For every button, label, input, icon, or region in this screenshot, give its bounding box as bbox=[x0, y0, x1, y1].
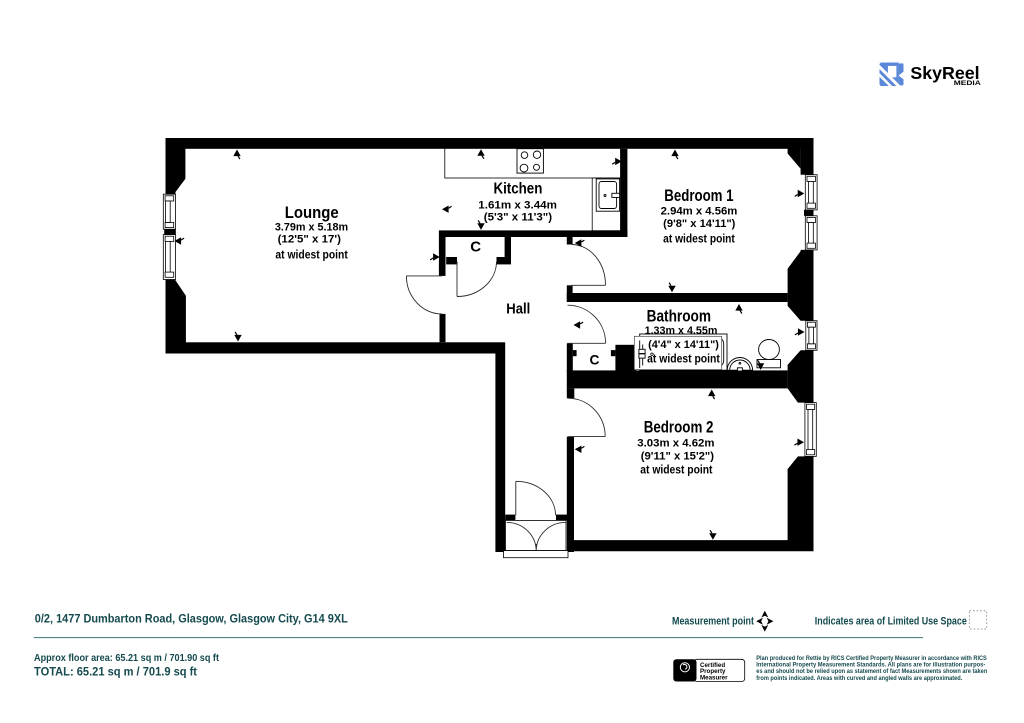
svg-text:0/2, 1477 Dumbarton Road, Glas: 0/2, 1477 Dumbarton Road, Glasgow, Glasg… bbox=[35, 612, 348, 626]
svg-text:Bedroom 1: Bedroom 1 bbox=[664, 186, 733, 205]
svg-text:Bedroom 2: Bedroom 2 bbox=[644, 418, 714, 437]
svg-text:Indicates area of Limited Use: Indicates area of Limited Use Space bbox=[815, 616, 967, 628]
svg-text:Bathroom: Bathroom bbox=[647, 307, 711, 326]
svg-text:Lounge: Lounge bbox=[285, 203, 339, 222]
svg-text:Approx floor area: 65.21 sq m: Approx floor area: 65.21 sq m / 701.90 s… bbox=[34, 653, 220, 664]
svg-text:RICS: RICS bbox=[678, 675, 691, 681]
svg-text:at widest point: at widest point bbox=[663, 233, 735, 246]
svg-text:(9'11" x 15'2"): (9'11" x 15'2") bbox=[641, 450, 714, 462]
svg-text:C: C bbox=[590, 353, 600, 368]
svg-text:(9'8" x 14'11"): (9'8" x 14'11") bbox=[663, 218, 735, 230]
svg-text:C: C bbox=[470, 239, 481, 256]
svg-text:Hall: Hall bbox=[506, 301, 530, 318]
svg-text:1.61m x 3.44m: 1.61m x 3.44m bbox=[478, 199, 557, 211]
svg-text:(5'3" x 11'3"): (5'3" x 11'3") bbox=[484, 212, 552, 224]
svg-text:at widest point: at widest point bbox=[275, 249, 348, 262]
svg-text:Kitchen: Kitchen bbox=[493, 181, 542, 198]
svg-text:3.03m x 4.62m: 3.03m x 4.62m bbox=[637, 437, 714, 449]
svg-text:(12'5" x 17'): (12'5" x 17') bbox=[278, 234, 341, 246]
svg-text:3.79m x 5.18m: 3.79m x 5.18m bbox=[275, 222, 348, 234]
svg-text:Measurer: Measurer bbox=[700, 675, 728, 682]
svg-text:TOTAL: 65.21 sq m / 701.9 sq f: TOTAL: 65.21 sq m / 701.9 sq ft bbox=[34, 664, 197, 678]
svg-text:at widest point: at widest point bbox=[647, 353, 720, 366]
svg-text:Measurement point: Measurement point bbox=[672, 616, 754, 628]
svg-text:MEDIA: MEDIA bbox=[954, 80, 981, 87]
svg-text:1.33m x 4.55m: 1.33m x 4.55m bbox=[645, 325, 718, 337]
svg-text:at widest point: at widest point bbox=[640, 464, 712, 477]
svg-text:2.94m x 4.56m: 2.94m x 4.56m bbox=[661, 205, 738, 217]
svg-text:from points indicated. Areas w: from points indicated. Areas with curved… bbox=[756, 675, 962, 682]
svg-text:(4'4" x 14'11"): (4'4" x 14'11") bbox=[648, 339, 719, 351]
